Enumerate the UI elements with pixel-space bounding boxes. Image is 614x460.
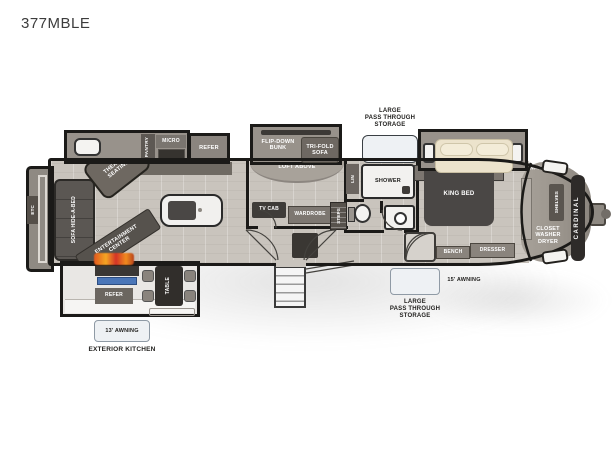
model-number: 377MBLE [21,15,90,33]
brand-label: CARDINAL [574,196,581,239]
kitchen-window [74,138,101,156]
pantry-label: PANTRY [145,137,151,157]
rear-shelf [38,175,47,263]
storage-bottom-label: LARGE PASS THROUGH STORAGE [384,299,446,320]
tri-fold-line2: SOFA [312,150,328,156]
micro-label: MICRO [162,139,180,145]
flip-down-bunk-rail [261,130,331,135]
brand-strip: CARDINAL [571,175,585,261]
storage-bottom-line1: LARGE [404,299,426,305]
chair-1 [142,270,154,282]
refer-label: REFER [199,145,219,151]
slide-outdoor-kitchen: REFER TABLE [60,261,200,317]
outdoor-table-label: TABLE [166,277,172,294]
outdoor-refer-label: REFER [105,293,123,299]
griddle-cover [97,277,137,285]
outdoor-refer: REFER [95,288,133,304]
awning-rear-box: 13' AWNING [94,320,150,342]
flip-down-bunk-line1: FLIP-DOWN [262,139,295,145]
pillow-left [440,143,473,156]
microwave: MICRO [156,135,186,148]
entry-opening [276,260,306,267]
storage-bottom-line3: STORAGE [400,313,431,319]
storage-bottom-box [390,268,440,295]
floorplan: 377MBLE ETC PANTRY MICRO REFER FLIP-DOWN… [0,0,614,460]
flip-down-bunk-label: FLIP-DOWN BUNK [255,139,301,152]
storage-bottom-line2: PASS THROUGH [390,306,440,312]
rear-wall-cabinet: ETC [27,196,38,224]
storage-top-label: LARGE PASS THROUGH STORAGE [352,108,428,129]
griddle-flame [94,253,134,265]
outdoor-table: TABLE [155,266,183,306]
storage-top-line2: PASS THROUGH [365,115,415,121]
chair-2 [142,290,154,302]
etc-label: ETC [30,205,35,215]
storage-top-line3: STORAGE [375,122,406,128]
storage-top-line1: LARGE [379,108,401,114]
entry-steps [274,266,306,308]
exterior-kitchen-label: EXTERIOR KITCHEN [86,346,158,354]
chair-3 [184,270,196,282]
coach-outline [48,158,594,266]
pillow-right [476,143,509,156]
awning-front-label: 15' AWNING [444,277,484,283]
tri-fold-line1: TRI-FOLD [306,144,333,150]
tri-fold-sofa-label: TRI-FOLD SOFA [306,144,333,157]
awning-rear-label: 13' AWNING [105,328,138,334]
hitch-pin [601,209,611,219]
chair-4 [184,290,196,302]
flip-down-bunk-line2: BUNK [270,145,287,151]
floor-mat [149,308,195,316]
pantry: PANTRY [141,134,155,161]
